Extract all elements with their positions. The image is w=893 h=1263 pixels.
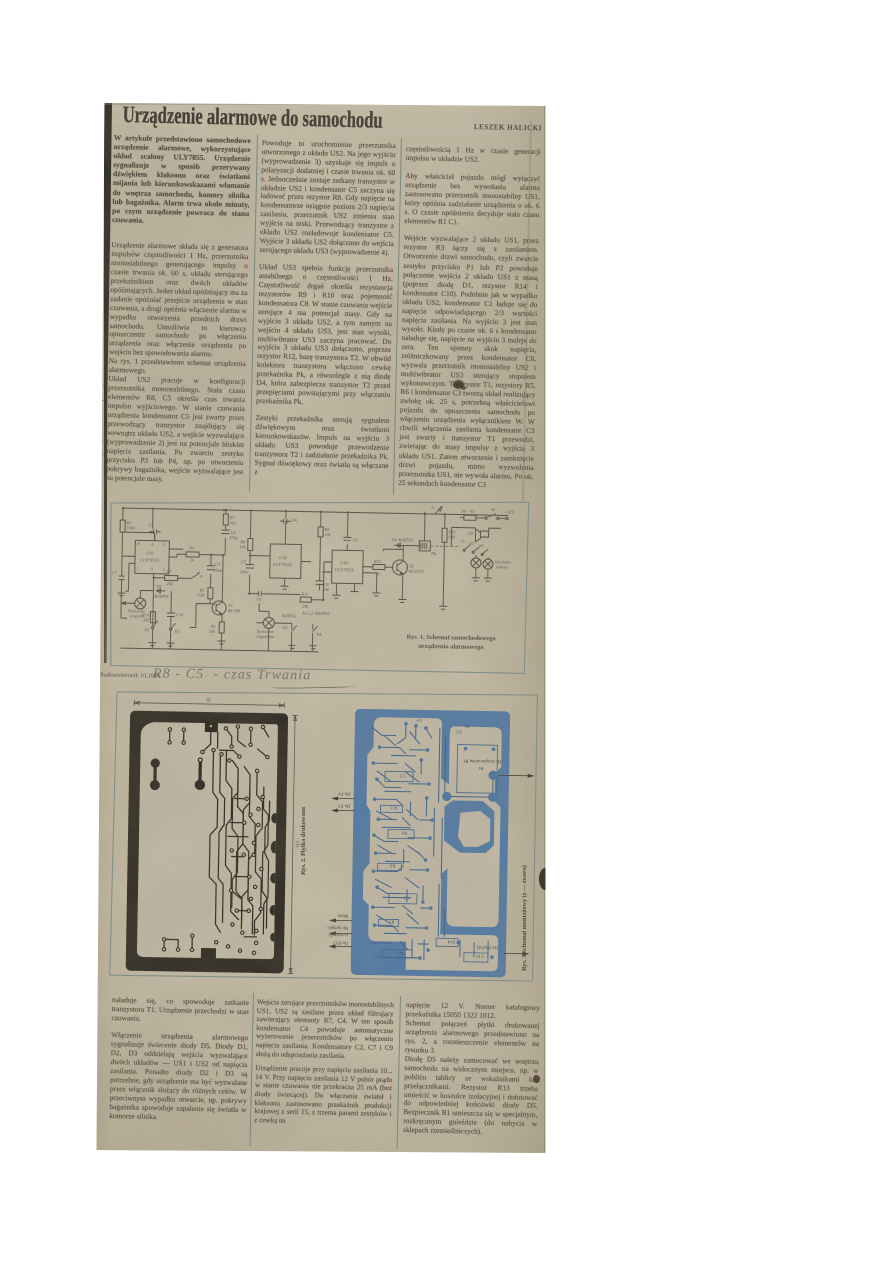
svg-text:10k: 10k [324, 532, 330, 537]
svg-text:P3: P3 [282, 625, 288, 630]
svg-text:Pk: Pk [478, 766, 484, 771]
svg-text:10n: 10n [291, 517, 298, 522]
svg-text:B1: B1 [465, 723, 470, 728]
svg-text:D2: D2 [455, 730, 461, 735]
svg-text:Do P1(PZ): Do P1(PZ) [476, 944, 499, 949]
svg-text:R11: R11 [389, 805, 397, 810]
svg-text:bagażnika: bagażnika [257, 634, 275, 639]
svg-text:150k: 150k [196, 593, 205, 598]
svg-text:1M: 1M [143, 617, 149, 622]
svg-text:R1: R1 [397, 951, 403, 956]
svg-text:Do R13: Do R13 [333, 939, 349, 944]
svg-text:(cewka B): (cewka B) [329, 931, 349, 936]
svg-text:Do P4: Do P4 [338, 790, 352, 795]
svg-text:Rys. 3 Schemat montażowy (z —: Rys. 3 Schemat montażowy (z — zwora) [521, 865, 528, 971]
svg-text:AC1,2÷BAYP95: AC1,2÷BAYP95 [301, 611, 331, 618]
svg-text:C4: C4 [403, 896, 409, 901]
svg-text:Do P3: Do P3 [337, 802, 351, 807]
svg-text:BC508: BC508 [228, 608, 241, 613]
svg-text:Masa: Masa [337, 913, 349, 918]
svg-text:Do bezpiecznika B1: Do bezpiecznika B1 [463, 758, 502, 764]
svg-text:C3: C3 [399, 774, 405, 779]
svg-text:BAYP95: BAYP95 [154, 594, 169, 599]
svg-text:C9: C9 [416, 718, 422, 723]
svg-text:Rys. 1. Schemat samochodowego: Rys. 1. Schemat samochodowego [407, 634, 496, 643]
svg-text:urządzenia alarmowego: urządzenia alarmowego [418, 643, 483, 651]
svg-text:P4: P4 [316, 632, 323, 637]
svg-text:R8: R8 [389, 863, 395, 868]
svg-text:C10: C10 [176, 612, 184, 617]
svg-text:R7: R7 [388, 919, 394, 924]
svg-text:70: 70 [206, 696, 211, 701]
svg-text:C10: C10 [476, 954, 484, 959]
svg-text:P2: P2 [174, 629, 181, 634]
svg-text:P1: P1 [144, 628, 150, 633]
svg-text:R11: R11 [300, 592, 308, 597]
svg-text:10k: 10k [209, 629, 215, 634]
svg-text:24k: 24k [302, 604, 308, 609]
svg-text:BAYP32: BAYP32 [282, 613, 297, 618]
svg-text:Do lampki -: Do lampki - [325, 924, 349, 929]
svg-text:R9: R9 [401, 831, 407, 836]
svg-text:C6: C6 [256, 597, 262, 602]
svg-text:Rys. 2. Płytka drukowana: Rys. 2. Płytka drukowana [300, 807, 307, 875]
svg-text:R14: R14 [447, 939, 455, 944]
